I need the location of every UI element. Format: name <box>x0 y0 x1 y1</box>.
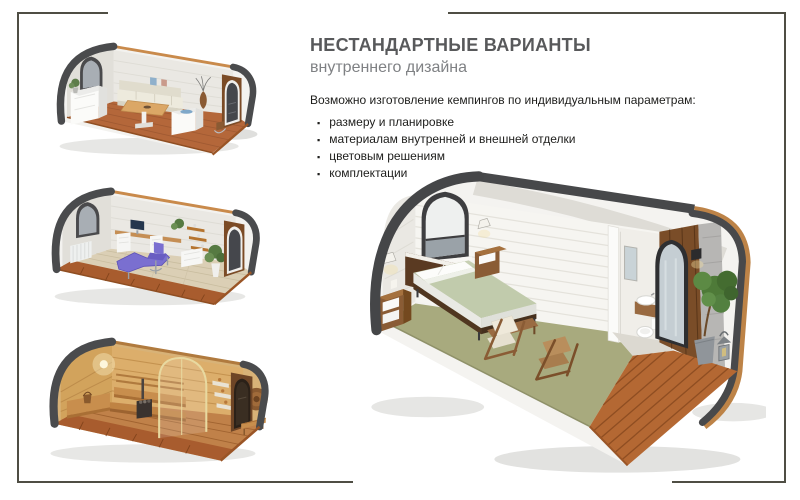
bullet-item: ▪ цветовым решениям <box>310 148 750 165</box>
frame-gap-top <box>108 10 448 17</box>
bedroom-pod-render <box>356 164 766 486</box>
dining-pod-render <box>34 24 268 164</box>
bullet-label: размеру и планировке <box>329 114 454 130</box>
bullet-label: цветовым решениям <box>329 148 445 164</box>
bullet-marker: ▪ <box>317 115 320 131</box>
bullet-marker: ▪ <box>317 132 320 148</box>
sauna-pod-image <box>30 314 276 474</box>
page-subtitle: внутреннего дизайна <box>310 58 750 78</box>
sauna-pod-render <box>30 314 276 474</box>
bullet-marker: ▪ <box>317 149 320 165</box>
page-title: НЕСТАНДАРТНЫЕ ВАРИАНТЫ <box>310 34 750 56</box>
bullet-marker: ▪ <box>317 166 320 182</box>
slide: НЕСТАНДАРТНЫЕ ВАРИАНТЫ внутреннего дизай… <box>0 0 800 500</box>
bullet-label: материалам внутренней и внешней отделки <box>329 131 575 147</box>
office-pod-image <box>26 168 274 314</box>
office-pod-render <box>26 168 274 314</box>
bullet-item: ▪ материалам внутренней и внешней отделк… <box>310 131 750 148</box>
intro-text: Возможно изготовление кемпингов по индив… <box>310 93 750 108</box>
dining-pod-image <box>34 24 268 164</box>
text-content: НЕСТАНДАРТНЫЕ ВАРИАНТЫ внутреннего дизай… <box>310 34 750 182</box>
bedroom-pod-image <box>356 164 766 486</box>
bullet-item: ▪ размеру и планировке <box>310 114 750 131</box>
